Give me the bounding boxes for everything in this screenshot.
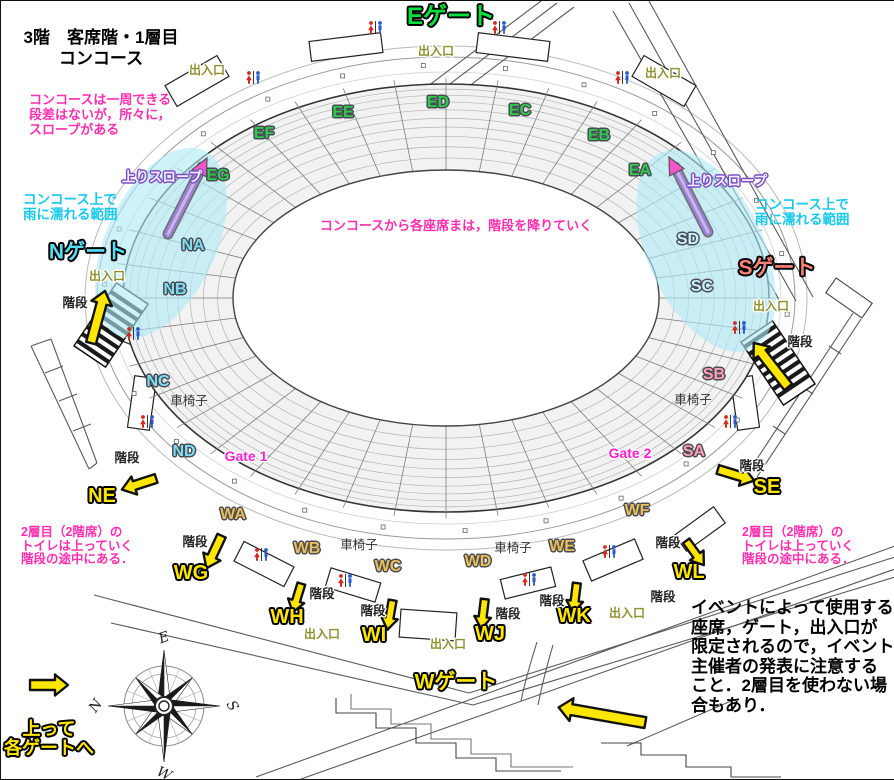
note-to-seats: コンコースから各座席まは，階段を降りていく (320, 218, 592, 233)
compass-letter-w: W (154, 764, 175, 779)
compass-letter-e: E (156, 629, 172, 648)
section-wi: WI (362, 625, 386, 645)
flow-arrow-sw (557, 696, 648, 734)
exit-label: 出入口 (753, 300, 789, 312)
stairs-label: 階段 (650, 591, 675, 604)
toilet-icon (245, 71, 262, 89)
toilet-icon (367, 21, 384, 39)
exit-label: 出入口 (418, 45, 454, 57)
wheelchair-label: 車椅子 (170, 395, 208, 408)
gate-point-1: Gate 1 (225, 449, 268, 463)
section-wc: WC (375, 559, 402, 575)
exit-label: 出入口 (304, 628, 340, 640)
kiosk (675, 507, 726, 551)
note-concourse-loop: コンコースは一周できる段差はないが，所々に，スロープがある (29, 92, 171, 137)
stairs-label: 階段 (309, 588, 334, 601)
stairs-label: 階段 (539, 595, 564, 608)
stairs-label: 階段 (62, 297, 87, 310)
section-wh: WH (270, 607, 303, 627)
section-wj: WJ (475, 624, 505, 644)
note-rain-left: コンコース上で雨に濡れる範囲 (23, 192, 118, 222)
stairs-label: 階段 (495, 608, 520, 621)
wheelchair-label: 車椅子 (494, 542, 532, 555)
exit-label: 出入口 (430, 638, 466, 650)
wheelchair-label: 車椅子 (674, 394, 712, 407)
section-nc: NC (146, 374, 169, 390)
toilet-icon (614, 71, 631, 89)
compass-letter-n: N (85, 696, 106, 717)
section-wf: WF (625, 503, 650, 519)
note-up-to-gates: 上って各ゲートへ (4, 720, 94, 758)
compass-letter-s: S (223, 698, 242, 714)
section-ee: EE (332, 105, 353, 121)
section-ne: NE (88, 486, 116, 506)
compass-rose: ESWN (85, 629, 241, 779)
exit-label: 出入口 (645, 67, 681, 79)
section-nb: NB (163, 282, 186, 298)
section-ed: ED (427, 95, 449, 111)
page-title-line2: コンコース (11, 48, 191, 69)
toilet-icon (337, 574, 354, 592)
section-ea: EA (629, 163, 651, 179)
ramp-label-left: 上りスロープ (122, 170, 202, 184)
toilet-icon (521, 573, 538, 591)
toilet-icon (139, 415, 156, 433)
section-sc: SC (691, 279, 713, 295)
section-wg: WG (174, 563, 208, 583)
note-rain-right: コンコース上で雨に濡れる範囲 (755, 197, 850, 227)
section-sa: SA (683, 444, 705, 460)
exit-label: 出入口 (609, 607, 645, 619)
stairs-label: 階段 (182, 536, 207, 549)
section-wk: WK (557, 606, 590, 626)
toilet-icon (601, 545, 618, 563)
stairs-label: 階段 (114, 452, 139, 465)
gate-s-label: Sゲート (738, 258, 815, 279)
exit-label: 出入口 (189, 64, 225, 76)
west-mast (31, 339, 97, 469)
section-eg: EG (206, 168, 229, 184)
stairs-label: 階段 (787, 336, 812, 349)
page-title-line1: 3階 客席階・1層目 (11, 27, 191, 48)
toilet-icon (125, 327, 142, 345)
stairs-arrow-ne (119, 469, 159, 498)
wheelchair-label: 車椅子 (340, 539, 378, 552)
note-tier2-left: 2層目（2階席）のトイレは上っていく階段の途中にある． (21, 526, 134, 567)
up-to-gates-arrow (30, 675, 68, 696)
stadium-concourse-map: ESWN 3階 客席階・1層目 コンコース EゲートNゲートSゲートWゲートEG… (0, 0, 894, 780)
toilet-icon (722, 415, 739, 433)
note-tier2-right: 2層目（2階席）のトイレは上っていく階段の途中にある． (742, 526, 855, 567)
exit-label: 出入口 (89, 270, 125, 282)
section-ec: EC (509, 103, 531, 119)
stairs-label: 階段 (360, 605, 385, 618)
toilet-icon (491, 21, 508, 39)
page-title: 3階 客席階・1層目 コンコース (11, 27, 191, 69)
section-se: SE (754, 477, 781, 497)
stairs-label: 階段 (739, 460, 764, 473)
section-sd: SD (677, 232, 699, 248)
section-wb: WB (294, 541, 321, 557)
toilet-icon (253, 548, 270, 566)
stairs-label: 階段 (655, 537, 680, 550)
section-wa: WA (220, 507, 246, 523)
gate-n-label: Nゲート (49, 242, 127, 263)
gate-e-label: Eゲート (407, 5, 495, 29)
gate-w-label: Wゲート (415, 672, 498, 693)
section-sb: SB (703, 367, 725, 383)
section-wd: WD (465, 554, 492, 570)
section-we: WE (549, 539, 575, 555)
toilet-icon (731, 321, 748, 339)
section-na: NA (181, 238, 204, 254)
note-event: イベントによって使用する座席，ゲート，出入口が限定されるので，イベント主催者の発… (691, 598, 894, 715)
section-eb: EB (588, 128, 610, 144)
section-wl: WL (673, 562, 704, 582)
section-nd: ND (172, 444, 195, 460)
ramp-label-right: 上りスロープ (687, 174, 767, 188)
section-ef: EF (254, 126, 274, 142)
gate-point-2: Gate 2 (609, 446, 652, 460)
kiosk (476, 33, 550, 62)
